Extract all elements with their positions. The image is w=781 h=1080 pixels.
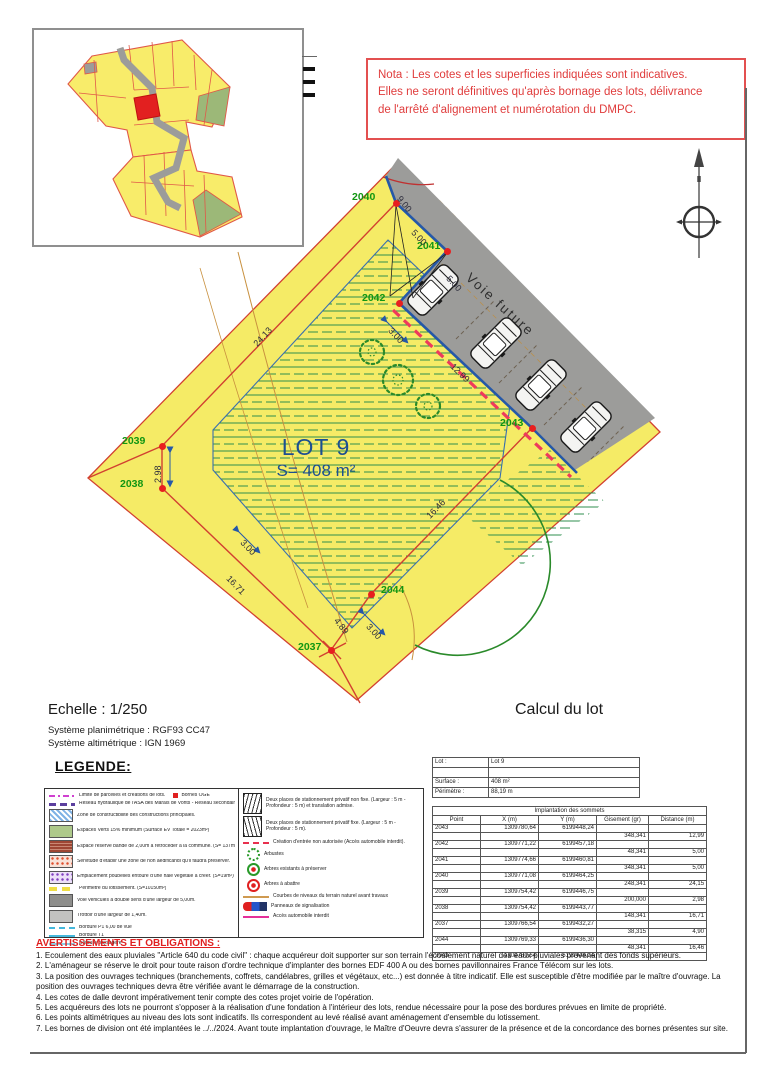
legend-item-label: Panneaux de signalisation [271, 904, 329, 910]
stationnement-fixe-icon [243, 816, 262, 837]
legend-item: Arbres à abattre [243, 879, 420, 892]
sheet-frame-right [745, 88, 747, 1053]
legend-item: Périmètre du lotissement. (S=10150m²) [49, 886, 235, 892]
legend-item-label: Bornes OGE [181, 793, 209, 799]
column-header: X (m) [481, 816, 539, 825]
table-row: Périmètre :88,19 m [433, 788, 640, 798]
legend-item: Panneaux de signalisation [243, 902, 420, 911]
legend-item-label: Accès automobile interdit [273, 914, 329, 920]
table-row: 20411309774,666199460,81 [433, 857, 707, 865]
legend-item-label: Espace réservé bande de 2,00m à rétrocéd… [77, 844, 235, 850]
legend-item-label: Deux places de stationnement privatif no… [266, 798, 420, 810]
column-header: Point [433, 816, 481, 825]
legend-item: Création d'entrée non autorisée (Accès a… [243, 840, 420, 846]
highlighted-lot [134, 94, 160, 120]
warnings-section: AVERTISSEMENTS ET OBLIGATIONS : 1. Ecoul… [36, 938, 744, 1034]
legend-item-label: Bordure P1 6,00 de vue [79, 925, 132, 931]
legend-item: Voie véhicules à double sens d'une large… [49, 894, 235, 907]
courbes-niveaux-icon [243, 896, 269, 898]
legend-column-left: Limite de parcelles et créations de lots… [45, 789, 238, 937]
planimetric-system-label: Système planimétrique : RGF93 CC47 [48, 725, 210, 736]
legend-item: Limite de parcelles et créations de lots… [49, 793, 235, 799]
table-row: 38,3154,90 [433, 929, 707, 937]
legend-item-label: Courbes de niveaux du terrain naturel av… [273, 894, 388, 900]
zone-constructibilite-icon [49, 809, 73, 822]
table-row: 248,34124,15 [433, 881, 707, 889]
legend-item-label: Zone de constructibilité des constructio… [77, 813, 195, 819]
legend-title: LEGENDE: [55, 758, 131, 774]
legend-item-label: Limite de parcelles et créations de lots… [79, 793, 165, 799]
table-row: 20381309754,426199443,77 [433, 905, 707, 913]
registration-line [302, 56, 317, 57]
registration-mark [303, 80, 315, 84]
arbres-preserver-icon [247, 863, 260, 876]
arbustes-icon [247, 848, 260, 861]
legend-item: Bordure P1 6,00 de vue [49, 925, 235, 931]
bordure-p1-icon [49, 927, 75, 929]
table-row: 148,34116,71 [433, 913, 707, 921]
warning-item: 1. Ecoulement des eaux pluviales "Articl… [36, 951, 744, 961]
legend-item-label: Espaces Verts 15% minimum (Surface EV To… [77, 828, 209, 834]
legend-item: Emplacement poubelles entouré d'une haie… [49, 871, 235, 884]
legend-item-label: Servitude d'établir une zone de non aedi… [77, 859, 230, 865]
table-row [433, 768, 640, 778]
warning-item: 3. La position des ouvrages techniques (… [36, 972, 744, 993]
warning-item: 2. L'aménageur se réserve le droit pour … [36, 961, 744, 971]
acces-interdit-icon [243, 916, 269, 918]
warnings-list: 1. Ecoulement des eaux pluviales "Articl… [36, 951, 744, 1034]
legend-item-label: Voie véhicules à double sens d'une large… [77, 898, 196, 904]
legend-item-label: Arbustes [264, 852, 284, 858]
legend-column-right: Deux places de stationnement privatif no… [238, 789, 423, 937]
legend-item: Deux places de stationnement privatif no… [243, 793, 420, 814]
warning-item: 5. Les acquéreurs des lots ne pourront s… [36, 1003, 744, 1013]
legend-item-label: Arbres à abattre [264, 882, 300, 888]
lot-info-table: Lot :Lot 9Surface :408 m²Périmètre :88,1… [432, 757, 640, 798]
legend-item-label: Deux places de stationnement privatif fi… [266, 821, 420, 833]
warning-item: 4. Les cotes de dalle devront impérative… [36, 993, 744, 1003]
panneaux-icon [243, 902, 267, 911]
table-row: 348,34112,99 [433, 833, 707, 841]
legend-item: Zone de constructibilité des constructio… [49, 809, 235, 822]
registration-mark [303, 67, 315, 71]
creation-entree-icon [243, 842, 269, 844]
emplacement-poubelles-icon [49, 871, 73, 884]
sommets-table-title: Implantation des sommets [433, 807, 707, 816]
bordure-t1-icon [49, 935, 75, 937]
legend-item: Courbes de niveaux du terrain naturel av… [243, 894, 420, 900]
legend-item-label: Arbres existants à préserver [264, 867, 327, 873]
legend-item: Deux places de stationnement privatif fi… [243, 816, 420, 837]
bande-retroceder-icon [49, 840, 73, 853]
trottoir-icon [49, 910, 73, 923]
column-header: Y (m) [539, 816, 597, 825]
table-row: 20391309754,426199446,75 [433, 889, 707, 897]
column-header: Gisement (gr) [597, 816, 649, 825]
table-row: 20371309766,546199432,27 [433, 921, 707, 929]
voie-vehicules-icon [49, 894, 73, 907]
reseau-hydro-icon [49, 803, 75, 806]
legend-item-label: Emplacement poubelles entouré d'une haie… [77, 874, 234, 880]
table-row: 20401309771,086199464,25 [433, 873, 707, 881]
legend-item-label: Création d'entrée non autorisée (Accès a… [273, 840, 405, 846]
legend-item: Accès automobile interdit [243, 914, 420, 920]
sheet-frame-bottom [30, 1052, 746, 1054]
stationnement-non-fixe-icon [243, 793, 262, 814]
legend-item: Arbres existants à préserver [243, 863, 420, 876]
espaces-verts-icon [49, 825, 73, 838]
zone-non-aedificandi-icon [49, 855, 73, 868]
arbres-abattre-icon [247, 879, 260, 892]
legend-item: Espaces Verts 15% minimum (Surface EV To… [49, 825, 235, 838]
legend-item: Servitude d'établir une zone de non aedi… [49, 855, 235, 868]
table-row: 20421309771,226199457,18 [433, 841, 707, 849]
document-page: Nota : Les cotes et les superficies indi… [0, 0, 781, 1080]
borne-icon [173, 793, 178, 798]
limite-icon [49, 795, 75, 797]
legend-item-label: Trottoir d'une largeur de 1,40m. [77, 913, 147, 919]
site-plan-drawing [60, 140, 685, 715]
table-row: 20431309780,646199448,24 [433, 825, 707, 833]
legend-item: Arbustes [243, 848, 420, 861]
registration-mark [303, 93, 315, 97]
table-row: 200,0002,98 [433, 897, 707, 905]
legend-item-label: Périmètre du lotissement. (S=10150m²) [79, 886, 166, 892]
warnings-title: AVERTISSEMENTS ET OBLIGATIONS : [36, 938, 744, 949]
table-row: 348,3415,00 [433, 865, 707, 873]
table-row: 48,3415,00 [433, 849, 707, 857]
warning-item: 7. Les bornes de division ont été implan… [36, 1024, 744, 1034]
legend-item-label: Réseau hydraulique de l'ASA des Marais d… [79, 801, 235, 807]
table-row: Surface :408 m² [433, 778, 640, 788]
altimetric-system-label: Système altimétrique : IGN 1969 [48, 738, 185, 749]
calcul-title: Calcul du lot [515, 701, 603, 719]
scale-label: Echelle : 1/250 [48, 701, 147, 718]
table-row: Lot :Lot 9 [433, 758, 640, 768]
nota-box: Nota : Les cotes et les superficies indi… [366, 58, 746, 140]
column-header: Distance (m) [649, 816, 707, 825]
legend-item: Réseau hydraulique de l'ASA des Marais d… [49, 801, 235, 807]
legend-item: Espace réservé bande de 2,00m à rétrocéd… [49, 840, 235, 853]
legend-item: Trottoir d'une largeur de 1,40m. [49, 910, 235, 923]
legend-box: Limite de parcelles et créations de lots… [44, 788, 424, 938]
warning-item: 6. Les points altimétriques au niveau de… [36, 1013, 744, 1023]
perimetre-icon [49, 887, 75, 891]
